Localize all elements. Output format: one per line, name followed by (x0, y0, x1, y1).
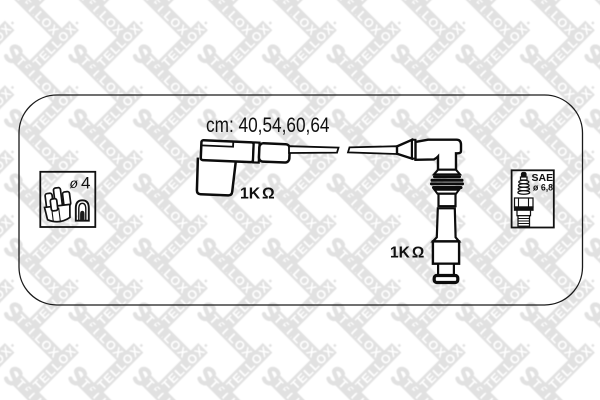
svg-text:ø 6,8: ø 6,8 (533, 183, 553, 193)
svg-text:1KΩ: 1KΩ (240, 186, 275, 203)
svg-text:cm: 40,54,60,64: cm: 40,54,60,64 (206, 113, 330, 137)
svg-text:1KΩ: 1KΩ (390, 244, 424, 261)
svg-text:4: 4 (81, 174, 90, 193)
svg-text:ø: ø (70, 175, 79, 191)
